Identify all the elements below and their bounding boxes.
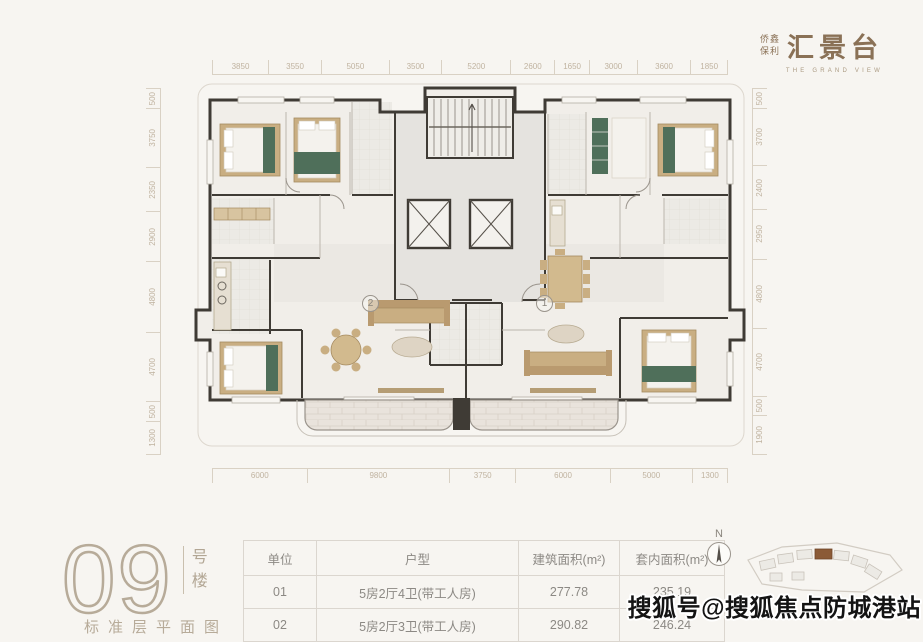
building-suffix-bottom: 楼 (192, 570, 208, 594)
dimension-value: 1300 (693, 469, 728, 483)
compass: N (702, 528, 736, 567)
logo-brand: 侨鑫 保利 (760, 34, 780, 57)
dimension-value: 5000 (611, 469, 693, 483)
dimension-value: 4800 (753, 260, 767, 329)
building-caption: 标准层平面图 (84, 616, 228, 637)
logo-tagline: THE GRAND VIEW (760, 68, 883, 74)
dimension-value: 1850 (691, 60, 728, 74)
table-cell: 5房2厅4卫(带工人房) (317, 576, 519, 609)
table-header: 单位 (244, 541, 317, 576)
dimension-value: 500 (146, 402, 160, 422)
dimension-value: 3700 (753, 109, 767, 167)
dimension-value: 5200 (442, 60, 511, 74)
dimension-value: 3600 (638, 60, 692, 74)
dimension-value: 3850 (212, 60, 269, 74)
dimension-value: 5050 (322, 60, 390, 74)
balcony-right (470, 400, 618, 430)
dimension-value: 2400 (753, 166, 767, 210)
building-suffix-top: 号 (192, 546, 208, 570)
balcony-divider (453, 398, 470, 430)
dimension-value: 3750 (146, 109, 160, 168)
dimension-value: 3500 (390, 60, 443, 74)
dimension-value: 1300 (146, 422, 160, 455)
floorplan (0, 0, 923, 520)
table-cell: 02 (244, 609, 317, 642)
logo-title: 汇景台 (787, 26, 883, 65)
dimension-value: 500 (146, 88, 160, 109)
compass-north-label: N (715, 528, 723, 540)
elevator-right (470, 200, 512, 248)
dimension-value: 6000 (516, 469, 611, 483)
logo-brand-top: 侨鑫 (760, 34, 780, 45)
table-cell: 290.82 (519, 609, 620, 642)
dimension-value: 500 (753, 88, 767, 109)
dimension-value: 4700 (146, 333, 160, 403)
dimension-value: 3550 (269, 60, 322, 74)
unit-badge-1: 1 (536, 295, 553, 312)
site-plan (742, 540, 907, 595)
dimension-value: 6000 (212, 469, 308, 483)
building-suffix: 号 楼 (183, 546, 208, 594)
table-cell: 5房2厅3卫(带工人房) (317, 609, 519, 642)
dimension-value: 3000 (590, 60, 638, 74)
dimension-value: 500 (753, 397, 767, 417)
dims-left: 500375023502900480047005001300 (146, 88, 161, 455)
logo: 侨鑫 保利 汇景台 THE GRAND VIEW (760, 26, 883, 74)
dims-right: 500370024002950480047005001900 (752, 88, 767, 455)
dimension-value: 4800 (146, 262, 160, 333)
dimension-value: 4700 (753, 329, 767, 397)
balcony-left (305, 400, 453, 430)
bath-floor-right (664, 198, 726, 244)
dimension-value: 1650 (555, 60, 590, 74)
dims-top: 3850355050503500520026001650300036001850 (212, 60, 728, 75)
unit-badge-2: 2 (362, 295, 379, 312)
corridor-left (274, 244, 395, 302)
logo-brand-bottom: 保利 (760, 46, 780, 57)
dims-bottom: 600098003750600050001300 (212, 468, 728, 483)
highlighted-building-09 (815, 549, 832, 559)
kitchen-floor-right (548, 114, 586, 194)
table-cell: 277.78 (519, 576, 620, 609)
bath-floor (352, 102, 392, 194)
dimension-value: 2900 (146, 212, 160, 262)
bath-floor-left (212, 198, 274, 244)
dimension-value: 1900 (753, 416, 767, 455)
table-cell: 01 (244, 576, 317, 609)
dimension-value: 2600 (511, 60, 555, 74)
building-number-block: 09 号 楼 (62, 536, 208, 624)
compass-icon (706, 541, 732, 567)
dimension-value: 9800 (308, 469, 451, 483)
dimension-value: 2350 (146, 168, 160, 212)
elevator-left (408, 200, 450, 248)
building-number: 09 (62, 536, 173, 624)
watermark: 搜狐号@搜狐焦点防城港站 (628, 588, 921, 623)
staircase (427, 97, 513, 158)
table-header: 建筑面积(m²) (519, 541, 620, 576)
table-header: 户型 (317, 541, 519, 576)
dimension-value: 3750 (450, 469, 516, 483)
dimension-value: 2950 (753, 210, 767, 260)
area-table-head: 单位户型建筑面积(m²)套内面积(m²) (244, 541, 725, 576)
